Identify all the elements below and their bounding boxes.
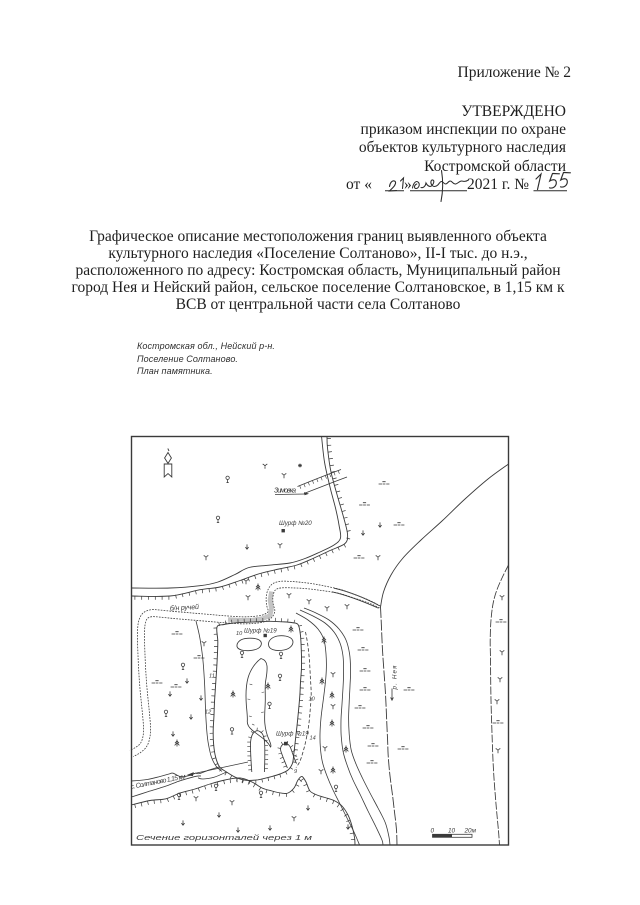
svg-text:14: 14 (310, 736, 316, 742)
svg-text:Шурф №19: Шурф №19 (244, 628, 277, 635)
svg-text:10: 10 (236, 631, 243, 637)
svg-text:Сечение горизонталей через 1 м: Сечение горизонталей через 1 м (136, 833, 312, 842)
svg-text:0: 0 (431, 828, 435, 835)
svg-text:Шурф №19: Шурф №19 (276, 731, 309, 738)
svg-text:б/н ручей: б/н ручей (170, 603, 199, 613)
svg-text:11: 11 (209, 674, 215, 680)
svg-text:р. Нея: р. Нея (392, 665, 399, 691)
svg-text:20м: 20м (464, 828, 477, 835)
svg-text:Зимовка: Зимовка (274, 488, 296, 495)
svg-text:Шурф №20: Шурф №20 (279, 520, 312, 527)
svg-text:10: 10 (448, 828, 456, 835)
svg-text:10: 10 (309, 697, 316, 703)
svg-text:12: 12 (205, 710, 212, 716)
svg-text:9: 9 (294, 769, 297, 775)
